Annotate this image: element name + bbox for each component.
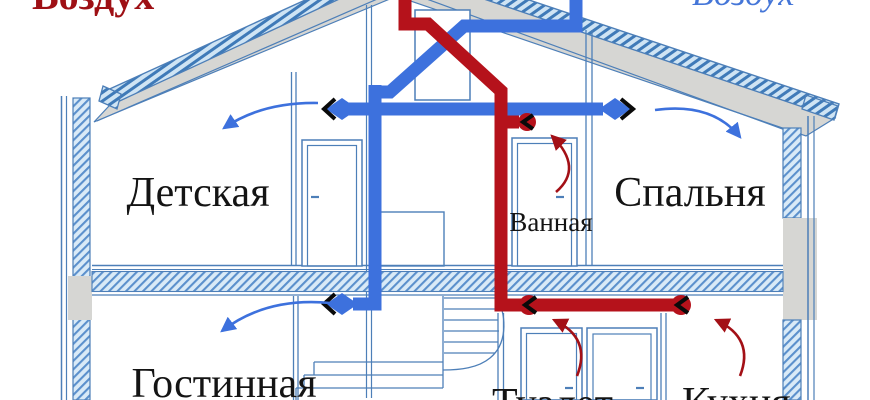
right-wall-insulation-upper [783, 128, 801, 218]
air-in-label: Воздух [692, 0, 794, 13]
room-label-bathroom: Ванная [509, 207, 592, 237]
door-children [302, 140, 362, 266]
room-label-living: Гостинная [131, 361, 316, 400]
floor-slab [92, 266, 783, 296]
room-label-bedroom: Спальня [614, 170, 765, 216]
house-ventilation-diagram: Воздух Воздух Детская Спальня Ванная Гос… [0, 0, 870, 400]
stairwell-guard-wall [376, 212, 444, 266]
room-label-children: Детская [126, 170, 269, 216]
left-wall-insulation [73, 98, 90, 400]
left-wall-slab-block [68, 276, 92, 320]
slab-hatch [92, 272, 783, 292]
air-out-label: Воздух [32, 0, 154, 18]
room-label-kitchen: Кухня [682, 380, 791, 400]
diagram-canvas: Воздух Воздух Детская Спальня Ванная Гос… [0, 0, 870, 400]
room-label-wc: Туалет [492, 381, 613, 400]
right-wall-slab-block [783, 218, 817, 320]
